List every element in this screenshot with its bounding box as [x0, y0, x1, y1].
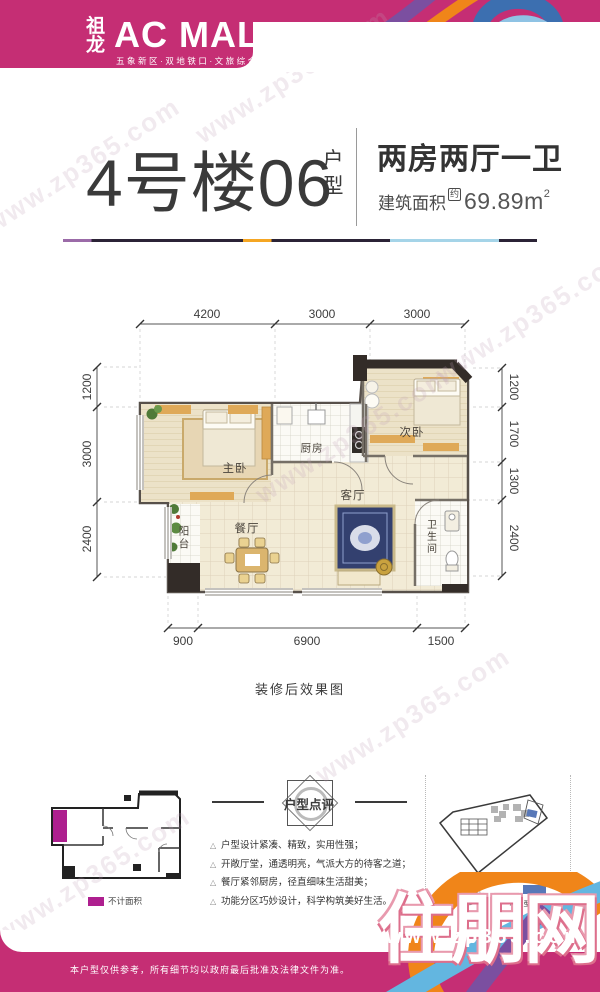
- layout-title: 两房两厅一卫: [377, 134, 563, 178]
- dimension-label: 4200: [194, 307, 221, 321]
- logo-tagline: 五象新区·双地铁口·文旅综合体: [116, 55, 270, 67]
- dimension-label: 3000: [404, 307, 431, 321]
- watermark-url: www.zp365.com: [386, 926, 585, 949]
- review-title: 户型点评: [281, 794, 337, 813]
- room-label-dining: 餐厅: [235, 520, 260, 536]
- dimension-label: 3000: [80, 440, 94, 467]
- dimension-label: 1200: [507, 374, 521, 401]
- dimension-label: 2400: [507, 525, 521, 552]
- ornament-line: [212, 801, 264, 803]
- footer-disclaimer: 本户型仅供参考，所有细节均以政府最后批准及法律文件为准。: [0, 963, 420, 976]
- mini-plan-highlight: [53, 810, 67, 842]
- dimension-label: 1200: [80, 373, 94, 400]
- dimension-label: 2400: [80, 525, 94, 552]
- room-label-second: 次卧: [400, 424, 425, 440]
- mini-plan-legend: 不计面积: [88, 896, 142, 906]
- triangle-bullet-icon: △: [210, 896, 221, 907]
- triangle-bullet-icon: △: [210, 859, 221, 870]
- unit-title-suffix: 户 型: [322, 148, 344, 200]
- area-value: 69.89m: [464, 188, 544, 214]
- logo-chinese: 祖龙: [86, 17, 110, 55]
- plan-caption: 装修后效果图: [0, 679, 600, 698]
- room-label-living: 客厅: [341, 487, 366, 503]
- ornament-line: [355, 801, 407, 803]
- room-label-bath: 卫生间: [423, 519, 438, 555]
- suffix-top: 户: [322, 148, 344, 174]
- dimension-label: 900: [173, 634, 193, 648]
- room-label-kitchen: 厨房: [301, 441, 324, 456]
- dimension-label: 3000: [309, 307, 336, 321]
- gradient-divider: [63, 239, 537, 242]
- floor-plan-drawing: 4200 3000 3000 1200 3000 2400 1200 1700 …: [0, 295, 600, 695]
- review-ornament: 户型点评: [212, 782, 412, 826]
- room-label-master: 主卧: [223, 460, 248, 476]
- triangle-bullet-icon: △: [210, 877, 221, 888]
- dimension-label: 1300: [507, 468, 521, 495]
- logo-english: AC MALL: [114, 14, 283, 56]
- area-approx-badge: 约: [448, 188, 461, 201]
- watermark-site-name: 住朋网: [378, 868, 597, 978]
- header-decor-swoosh-icon: [330, 0, 600, 22]
- area-line: 建筑面积约69.89m2: [378, 188, 550, 215]
- triangle-bullet-icon: △: [210, 840, 221, 851]
- title-divider: [356, 128, 357, 226]
- unit-title: 4号楼06: [86, 130, 333, 226]
- not-counted-area-label: 不计面积: [108, 895, 142, 907]
- diagonal-watermark: www.zp365.com: [0, 801, 196, 950]
- review-point: △户型设计紧凑、精致，实用性强；: [210, 840, 420, 851]
- floor-plan: 4200 3000 3000 1200 3000 2400 1200 1700 …: [0, 295, 600, 695]
- dimension-label: 1500: [428, 634, 455, 648]
- site-map-unit-highlight: [526, 809, 537, 818]
- area-superscript: 2: [544, 188, 551, 200]
- header-white-panel: [253, 22, 600, 72]
- area-label: 建筑面积: [378, 194, 446, 213]
- dimension-label: 1700: [507, 421, 521, 448]
- room-label-balcony: 阳台: [177, 526, 192, 551]
- suffix-bottom: 型: [322, 174, 344, 200]
- not-counted-area-swatch: [88, 897, 104, 906]
- dimension-label: 6900: [294, 634, 321, 648]
